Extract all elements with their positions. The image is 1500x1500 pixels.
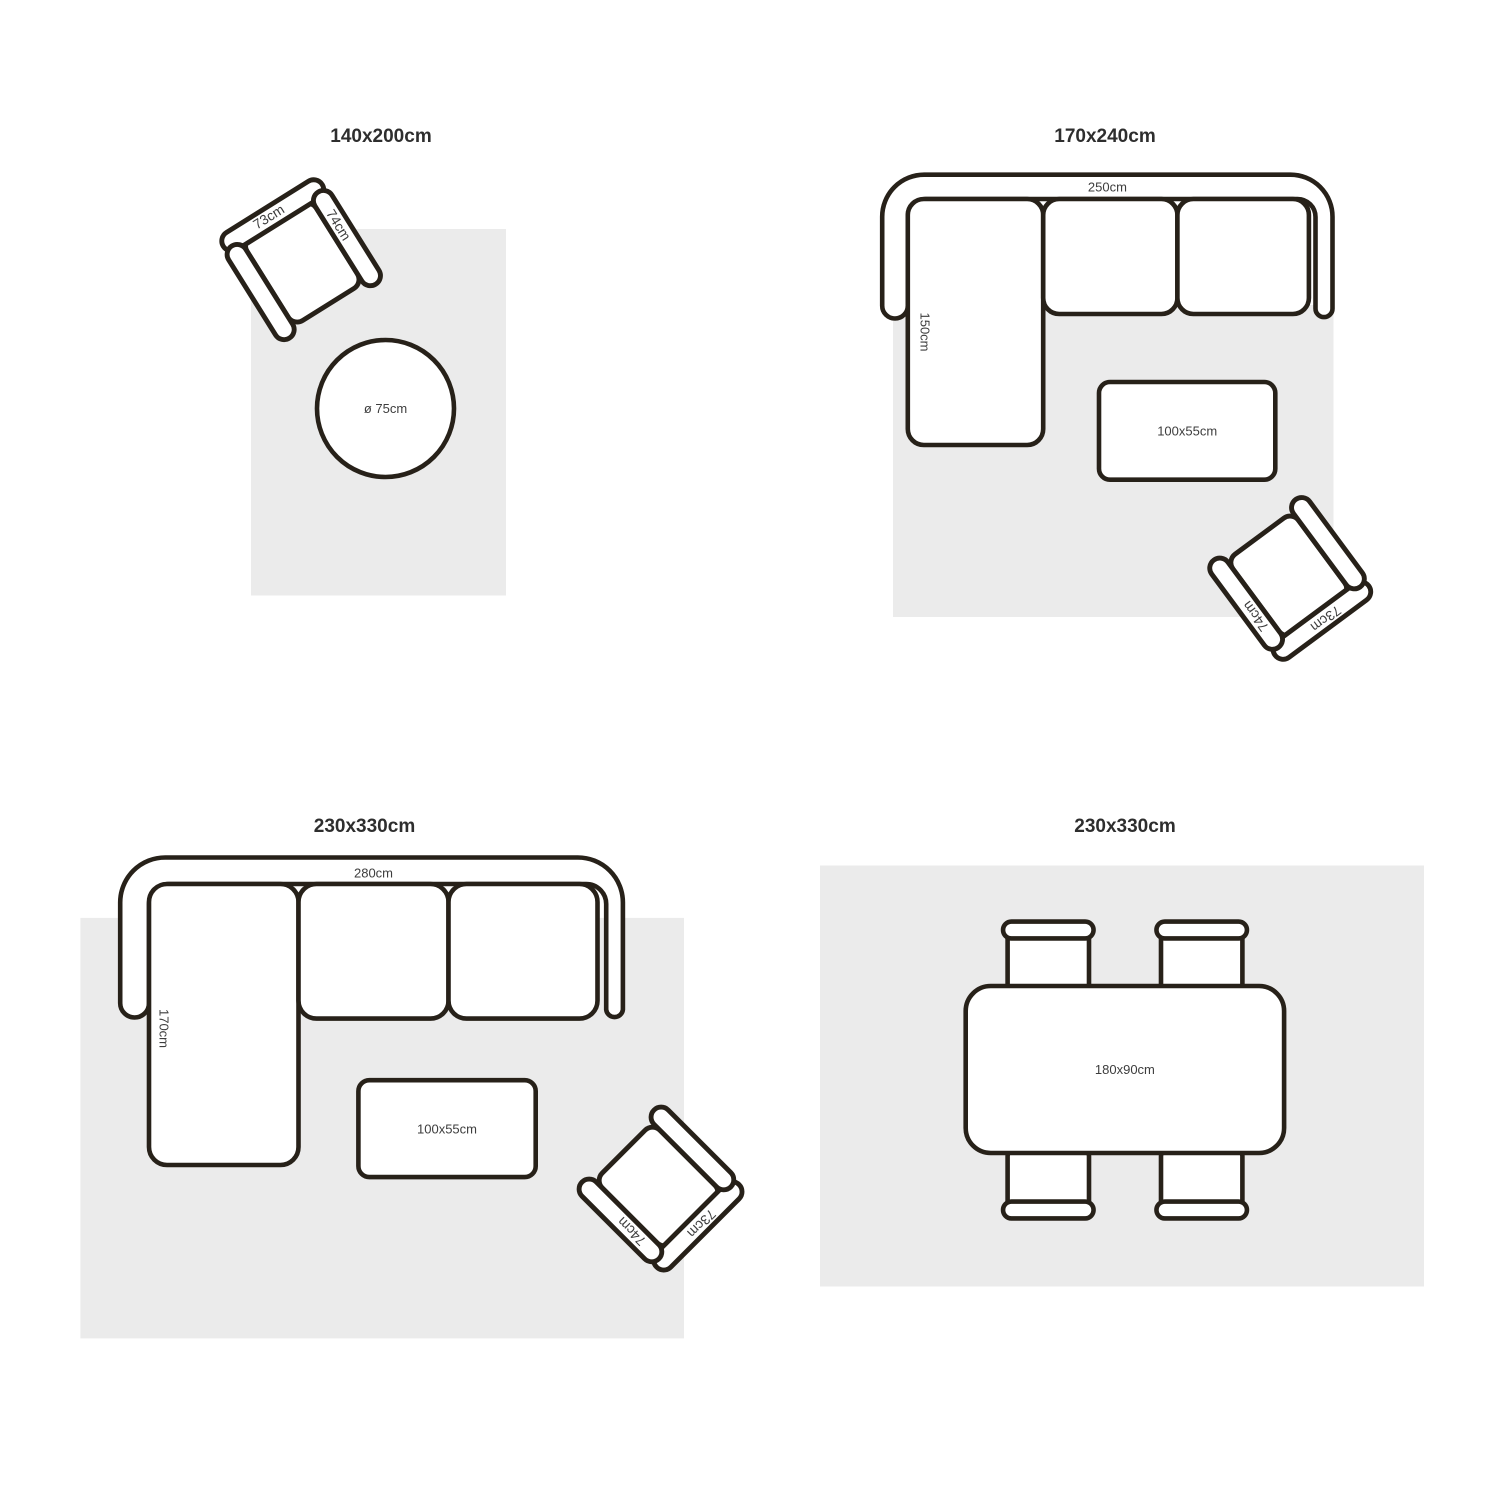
svg-text:ø 75cm: ø 75cm: [364, 401, 407, 416]
svg-text:170x240cm: 170x240cm: [1054, 126, 1155, 147]
svg-text:180x90cm: 180x90cm: [1095, 1062, 1155, 1077]
svg-text:280cm: 280cm: [354, 866, 393, 881]
svg-text:150cm: 150cm: [917, 312, 932, 351]
svg-text:250cm: 250cm: [1088, 180, 1127, 195]
svg-text:100x55cm: 100x55cm: [1157, 424, 1217, 439]
svg-text:230x330cm: 230x330cm: [314, 816, 415, 837]
svg-text:170cm: 170cm: [156, 1009, 171, 1048]
svg-text:140x200cm: 140x200cm: [330, 126, 431, 147]
svg-text:100x55cm: 100x55cm: [417, 1121, 477, 1136]
svg-text:230x330cm: 230x330cm: [1074, 816, 1175, 837]
